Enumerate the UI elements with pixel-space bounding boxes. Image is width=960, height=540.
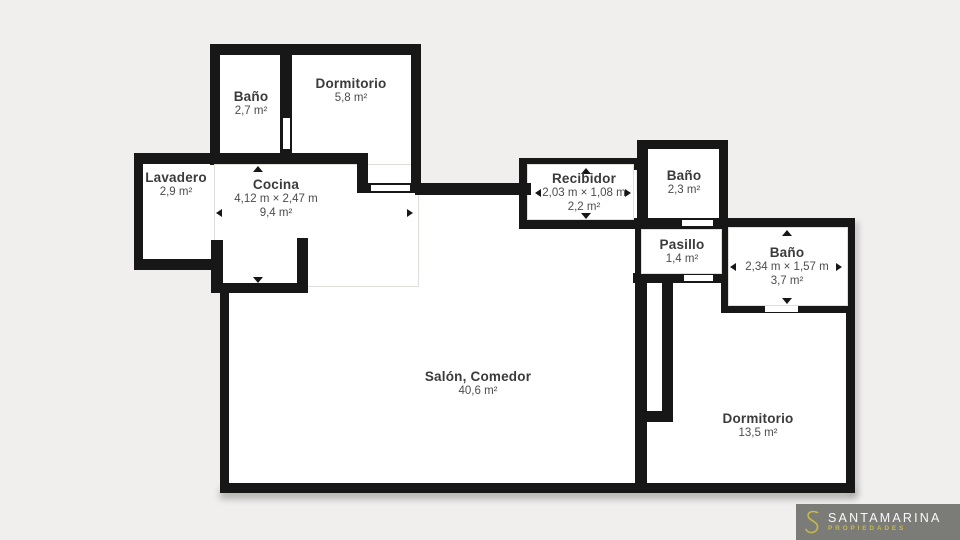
wall	[220, 483, 855, 493]
room-label-cocina: Cocina 4,12 m × 2,47 m 9,4 m²	[234, 177, 317, 220]
room-area: 2,9 m²	[145, 185, 207, 199]
room-name: Baño	[745, 245, 828, 260]
wall	[637, 140, 648, 230]
measure-arrow-right-icon	[836, 263, 842, 271]
wall	[633, 273, 731, 283]
wall	[134, 153, 368, 164]
wall	[134, 153, 143, 270]
room-name: Dormitorio	[723, 411, 794, 426]
room-label-bano-2: Baño 2,3 m²	[667, 168, 702, 197]
room-label-salon-comedor: Salón, Comedor 40,6 m²	[425, 369, 531, 398]
wall	[635, 283, 647, 493]
logo-tagline: PROPIEDADES	[828, 525, 942, 533]
room-area: 13,5 m²	[723, 426, 794, 440]
room-area: 9,4 m²	[234, 206, 317, 220]
room-dimensions: 4,12 m × 2,47 m	[234, 192, 317, 206]
room-label-pasillo: Pasillo 1,4 m²	[660, 237, 705, 266]
measure-arrow-right-icon	[407, 209, 413, 217]
room-label-lavadero: Lavadero 2,9 m²	[145, 170, 207, 199]
wall	[211, 283, 308, 293]
room-name: Pasillo	[660, 237, 705, 252]
room-label-bano-3: Baño 2,34 m × 1,57 m 3,7 m²	[745, 245, 828, 288]
window-marker	[371, 185, 410, 191]
measure-arrow-left-icon	[535, 189, 541, 197]
measure-arrow-down-icon	[253, 277, 263, 283]
room-name: Dormitorio	[316, 76, 387, 91]
room-name: Recibidor	[542, 171, 625, 186]
room-area: 3,7 m²	[745, 274, 828, 288]
room-name: Salón, Comedor	[425, 369, 531, 384]
room-label-bano-1: Baño 2,7 m²	[234, 89, 269, 118]
measure-arrow-left-icon	[730, 263, 736, 271]
agency-logo: SANTAMARINA PROPIEDADES	[796, 504, 960, 540]
room-area: 40,6 m²	[425, 384, 531, 398]
wall	[635, 411, 673, 422]
room-area: 2,7 m²	[234, 104, 269, 118]
room-label-dormitorio-2: Dormitorio 13,5 m²	[723, 411, 794, 440]
wall	[134, 259, 223, 270]
room-name: Cocina	[234, 177, 317, 192]
wall	[641, 140, 728, 149]
room-label-dormitorio-1: Dormitorio 5,8 m²	[316, 76, 387, 105]
measure-arrow-right-icon	[625, 189, 631, 197]
room-dimensions: 2,34 m × 1,57 m	[745, 260, 828, 274]
wall	[719, 140, 728, 220]
wall	[220, 285, 229, 493]
logo-s-icon	[803, 509, 821, 536]
logo-brand: SANTAMARINA	[828, 511, 942, 525]
door-opening	[765, 306, 798, 312]
measure-arrow-left-icon	[216, 209, 222, 217]
measure-arrow-up-icon	[253, 166, 263, 172]
logo-text: SANTAMARINA PROPIEDADES	[828, 511, 942, 533]
room-label-recibidor: Recibidor 2,03 m × 1,08 m 2,2 m²	[542, 171, 625, 214]
room-area: 1,4 m²	[660, 252, 705, 266]
wall	[662, 283, 673, 415]
wall	[411, 44, 421, 193]
floor-plan: Baño 2,7 m² Dormitorio 5,8 m² Lavadero 2…	[0, 0, 960, 540]
door-opening	[682, 220, 713, 226]
room-dimensions: 2,03 m × 1,08 m	[542, 186, 625, 200]
wall	[415, 183, 531, 195]
room-area: 2,2 m²	[542, 200, 625, 214]
room-name: Lavadero	[145, 170, 207, 185]
room-name: Baño	[667, 168, 702, 183]
wall	[210, 44, 421, 55]
measure-arrow-down-icon	[782, 298, 792, 304]
room-area: 5,8 m²	[316, 91, 387, 105]
room-name: Baño	[234, 89, 269, 104]
measure-arrow-up-icon	[782, 230, 792, 236]
room-area: 2,3 m²	[667, 183, 702, 197]
door-opening	[684, 275, 713, 281]
door-opening	[283, 118, 290, 149]
wall	[210, 44, 220, 165]
